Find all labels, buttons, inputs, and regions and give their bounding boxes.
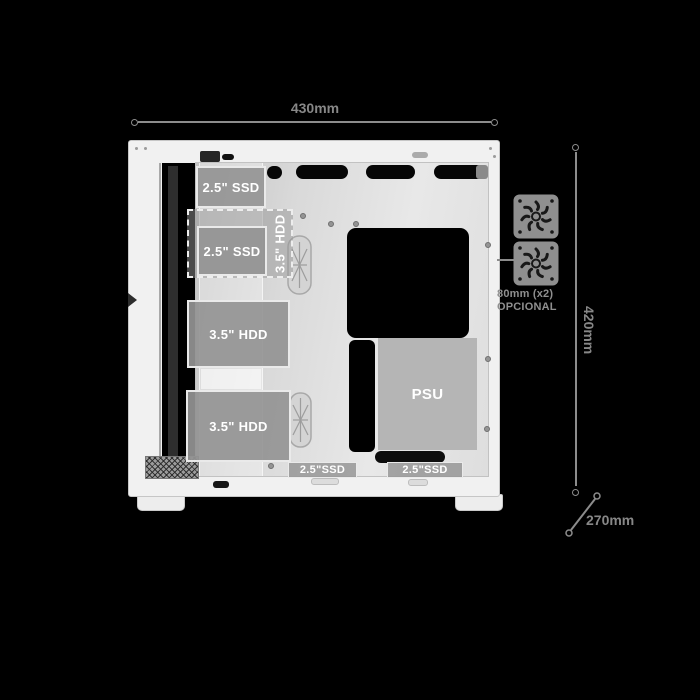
dimension-depth-label: 270mm	[586, 512, 634, 528]
bay-ssd-floor-right: 2.5"SSD	[387, 462, 463, 478]
frame-screw	[135, 147, 138, 150]
dimension-width-label: 430mm	[270, 100, 360, 116]
top-cable-slot-2	[296, 165, 348, 179]
tray-corner-block	[476, 165, 488, 179]
bay-ssd-mid: 2.5" SSD	[197, 226, 267, 276]
frame-screw	[489, 147, 492, 150]
top-latch	[200, 151, 220, 162]
front-pillar-seam	[159, 163, 161, 476]
side-panel-notch	[128, 293, 137, 307]
bay-ssd-floor-left: 2.5"SSD	[288, 462, 357, 478]
bay-hdd-lower: 3.5" HDD	[186, 390, 291, 462]
screw-dot	[485, 242, 491, 248]
fan-note-optional: OPCIONAL	[497, 301, 581, 314]
bay-hdd-upper: 3.5" HDD	[187, 300, 290, 368]
fan-connector-line	[497, 259, 514, 261]
top-cable-slot-1	[267, 166, 282, 179]
dimension-endpoint	[572, 144, 579, 151]
bottom-frame-pill	[311, 478, 339, 485]
dimension-endpoint	[131, 119, 138, 126]
dimension-endpoint	[491, 119, 498, 126]
frame-screw	[493, 155, 496, 158]
bottom-frame-pill	[408, 479, 428, 486]
top-frame-vent-pill	[412, 152, 428, 158]
fan-note: 80mm (x2) OPCIONAL	[497, 288, 581, 314]
fan-note-size: 80mm (x2)	[497, 288, 581, 301]
bay-ssd-top: 2.5" SSD	[196, 166, 266, 208]
bay-hdd-optional-label: 3.5" HDD	[270, 211, 290, 276]
grommet-icon	[289, 392, 312, 448]
top-latch-pin	[222, 154, 234, 160]
dimension-width-line	[138, 121, 491, 123]
bay-psu: PSU	[378, 338, 477, 450]
screw-dot	[300, 213, 306, 219]
top-cable-slot-3	[366, 165, 415, 179]
fan-icon	[513, 241, 559, 286]
front-channel-edge	[168, 166, 178, 462]
psu-cable-slot	[349, 340, 375, 452]
frame-screw	[144, 147, 147, 150]
dimension-height-line	[575, 152, 577, 486]
screw-dot	[328, 221, 334, 227]
screw-dot	[353, 221, 359, 227]
screw-dot	[485, 356, 491, 362]
screw-dot	[268, 463, 274, 469]
case-diagram: 2.5" SSD 3.5" HDD 2.5" SSD 3.5" HDD 3.5"…	[0, 0, 700, 700]
motherboard-cutout	[347, 228, 469, 338]
bottom-frame-slot	[213, 481, 229, 488]
dimension-height-label: 420mm	[581, 306, 597, 354]
drive-tray-divider	[201, 369, 261, 389]
screw-dot	[484, 426, 490, 432]
fan-icon	[513, 194, 559, 239]
